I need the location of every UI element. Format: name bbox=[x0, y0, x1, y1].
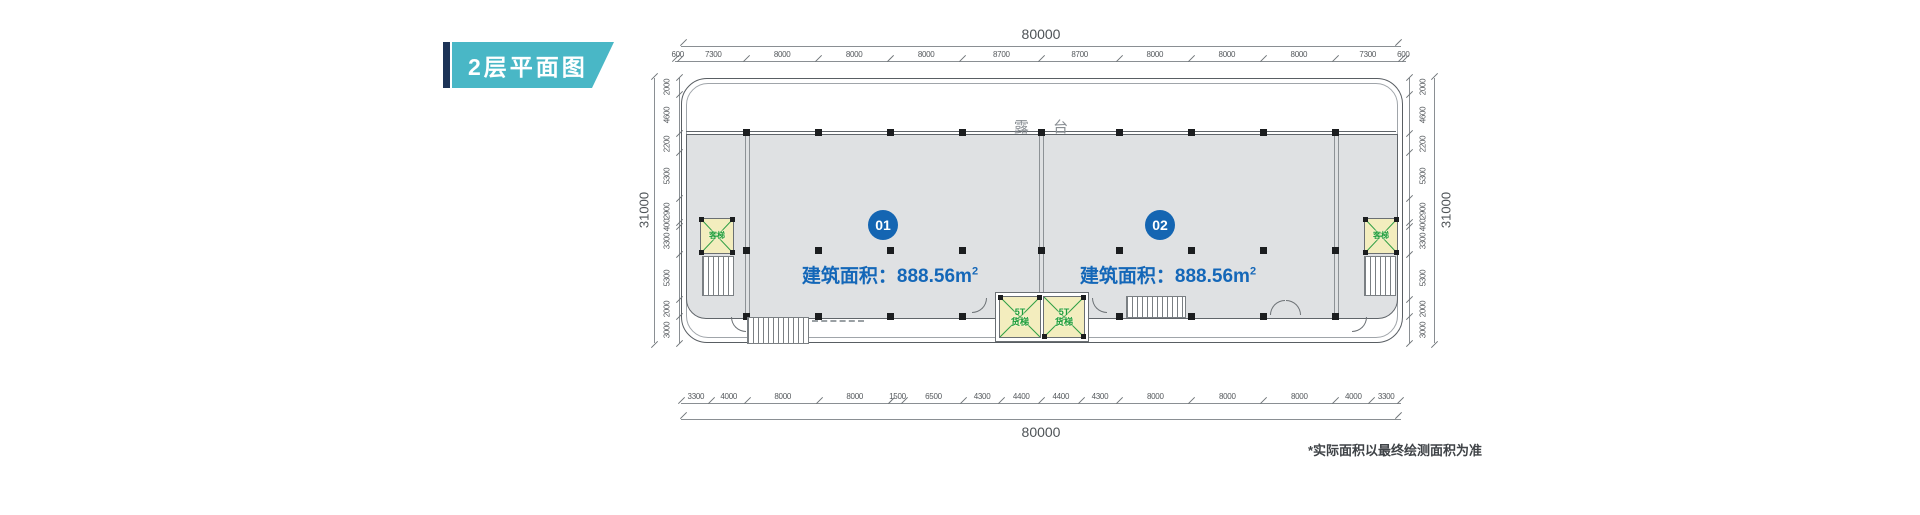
structural-column bbox=[959, 313, 966, 320]
area-label: 建筑面积： bbox=[1080, 266, 1175, 287]
passenger-elevator-label: 客梯 bbox=[1365, 219, 1397, 253]
dimension-label: 8000 bbox=[846, 392, 863, 401]
dimension-segment: 8000 bbox=[747, 392, 819, 406]
structural-column bbox=[1038, 247, 1045, 254]
structural-column bbox=[815, 247, 822, 254]
area-unit: m bbox=[955, 266, 972, 287]
dimension-segment: 8000 bbox=[1119, 392, 1191, 406]
area-value: 888.56 bbox=[1175, 266, 1233, 287]
dimension-label: 8700 bbox=[993, 50, 1010, 59]
structural-column bbox=[1260, 247, 1267, 254]
dimension-label: 3300 bbox=[1419, 233, 1428, 250]
dimension-segment: 7300 bbox=[680, 50, 746, 64]
structural-column bbox=[887, 247, 894, 254]
dimension-segment: 5300 bbox=[1402, 255, 1416, 300]
dim-row-bottom: 3300400080008000150065004300440044004300… bbox=[681, 392, 1401, 406]
structural-column bbox=[815, 313, 822, 320]
dimension-segment: 3300 bbox=[1402, 227, 1416, 255]
dimension-label: 4000 bbox=[720, 392, 737, 401]
partition-wall-right bbox=[1334, 134, 1339, 317]
dimension-label: 8000 bbox=[1219, 392, 1236, 401]
dimension-label: 4600 bbox=[663, 106, 672, 123]
dimension-segment: 8700 bbox=[1041, 50, 1119, 64]
dim-total-left-label: 31000 bbox=[637, 192, 652, 228]
dimension-label: 8700 bbox=[1071, 50, 1088, 59]
dimension-segment: 2900 bbox=[672, 199, 686, 224]
passenger-elevator-right: 客梯 bbox=[1364, 218, 1398, 254]
dim-row-top: 6007300800080008000870087008000800080007… bbox=[675, 50, 1406, 64]
dimension-segment: 6500 bbox=[904, 392, 963, 406]
dimension-label: 2000 bbox=[1419, 78, 1428, 95]
partition-wall-left bbox=[745, 134, 750, 317]
dimension-label: 8000 bbox=[1147, 392, 1164, 401]
dim-column-right: 200046002200530029004003300530020003000 bbox=[1402, 78, 1416, 343]
dimension-segment: 4400 bbox=[1001, 392, 1041, 406]
unit-01-area: 建筑面积：888.56m2 bbox=[778, 261, 1002, 288]
dimension-label: 8000 bbox=[774, 50, 791, 59]
dimension-label: 7300 bbox=[705, 50, 722, 59]
structural-column bbox=[1332, 313, 1339, 320]
dimension-label: 4300 bbox=[974, 392, 991, 401]
dimension-label: 5300 bbox=[663, 269, 672, 286]
dimension-label: 2000 bbox=[663, 301, 672, 318]
dimension-label: 8000 bbox=[1291, 50, 1308, 59]
dim-total-bottom-label: 80000 bbox=[1022, 424, 1061, 440]
structural-column bbox=[1332, 247, 1339, 254]
dimension-segment: 8000 bbox=[1119, 50, 1191, 64]
stair-center-right bbox=[1126, 296, 1186, 318]
passenger-elevator-label: 客梯 bbox=[701, 219, 733, 253]
structural-column bbox=[1188, 129, 1195, 136]
dimension-label: 8000 bbox=[846, 50, 863, 59]
dimension-label: 2900 bbox=[663, 203, 672, 220]
dimension-segment: 8000 bbox=[1191, 392, 1263, 406]
dimension-label: 8000 bbox=[918, 50, 935, 59]
dimension-label: 3000 bbox=[663, 322, 672, 339]
dimension-segment: 5300 bbox=[672, 153, 686, 198]
structural-column bbox=[815, 129, 822, 136]
unit-02-badge: 02 bbox=[1145, 210, 1175, 240]
dimension-segment: 3000 bbox=[1402, 317, 1416, 343]
dimension-segment: 3300 bbox=[672, 227, 686, 255]
dim-column-left: 200046002200530029004003300530020003000 bbox=[672, 78, 686, 343]
dimension-segment: 4300 bbox=[1081, 392, 1120, 406]
canopy-dashed-line bbox=[812, 320, 864, 322]
dimension-label: 6500 bbox=[925, 392, 942, 401]
dimension-segment: 2900 bbox=[1402, 199, 1416, 224]
dimension-segment: 8000 bbox=[818, 50, 890, 64]
dimension-label: 8000 bbox=[1291, 392, 1308, 401]
freight-elevator-label: 5T 货梯 bbox=[1000, 297, 1040, 337]
dim-total-right-label: 31000 bbox=[1439, 192, 1454, 228]
stair-right bbox=[1364, 256, 1396, 296]
structural-column bbox=[959, 247, 966, 254]
structural-column bbox=[1260, 129, 1267, 136]
freight-name: 货梯 bbox=[1055, 317, 1073, 327]
dimension-label: 5300 bbox=[1419, 269, 1428, 286]
unit-02-area: 建筑面积：888.56m2 bbox=[1056, 261, 1280, 288]
dimension-segment: 4600 bbox=[672, 95, 686, 134]
dimension-label: 4000 bbox=[1345, 392, 1362, 401]
dimension-segment: 4400 bbox=[1041, 392, 1081, 406]
structural-column bbox=[1332, 129, 1339, 136]
dimension-label: 7300 bbox=[1359, 50, 1376, 59]
structural-column bbox=[1116, 313, 1123, 320]
dim-total-bottom: 80000 bbox=[681, 419, 1401, 420]
dimension-label: 3300 bbox=[688, 392, 705, 401]
dimension-segment: 3300 bbox=[681, 392, 711, 406]
area-value: 888.56 bbox=[897, 266, 955, 287]
structural-column bbox=[1038, 129, 1045, 136]
dimension-label: 4600 bbox=[1419, 106, 1428, 123]
partition-wall-center bbox=[1039, 134, 1044, 317]
dimension-label: 2900 bbox=[1419, 203, 1428, 220]
dimension-label: 2000 bbox=[663, 78, 672, 95]
structural-column bbox=[959, 129, 966, 136]
dimension-label: 4400 bbox=[1013, 392, 1030, 401]
banner-flag: 2层平面图 bbox=[452, 42, 614, 88]
dim-total-left: 31000 bbox=[654, 78, 655, 343]
dimension-label: 8000 bbox=[774, 392, 791, 401]
dimension-segment: 8700 bbox=[962, 50, 1040, 64]
floorplan-page: 2层平面图 露 台 客梯 客梯 5T 货梯 5T 货梯 bbox=[0, 0, 1920, 515]
freight-name: 货梯 bbox=[1011, 317, 1029, 327]
freight-capacity: 5T bbox=[1015, 307, 1026, 317]
unit-01-badge: 01 bbox=[868, 210, 898, 240]
dimension-label: 3300 bbox=[663, 233, 672, 250]
dimension-segment: 4300 bbox=[963, 392, 1002, 406]
freight-capacity: 5T bbox=[1059, 307, 1070, 317]
dimension-segment: 8000 bbox=[890, 50, 962, 64]
dimension-segment: 1500 bbox=[891, 392, 905, 406]
structural-column bbox=[1260, 313, 1267, 320]
structural-column bbox=[1116, 129, 1123, 136]
dimension-label: 400 bbox=[663, 219, 672, 231]
structural-column bbox=[743, 247, 750, 254]
dim-total-right: 31000 bbox=[1434, 78, 1435, 343]
dimension-label: 8000 bbox=[1147, 50, 1164, 59]
area-unit: m bbox=[1233, 266, 1250, 287]
dimension-label: 3000 bbox=[1419, 322, 1428, 339]
dimension-label: 2200 bbox=[1419, 136, 1428, 153]
dimension-label: 5300 bbox=[663, 168, 672, 185]
dimension-segment: 8000 bbox=[819, 392, 891, 406]
structural-column bbox=[743, 129, 750, 136]
dim-total-top-label: 80000 bbox=[1022, 26, 1061, 42]
dimension-label: 5300 bbox=[1419, 168, 1428, 185]
passenger-elevator-left: 客梯 bbox=[700, 218, 734, 254]
area-unit-sup: 2 bbox=[972, 266, 978, 278]
dimension-label: 4300 bbox=[1092, 392, 1109, 401]
area-label: 建筑面积： bbox=[802, 266, 897, 287]
dimension-label: 8000 bbox=[1219, 50, 1236, 59]
structural-column bbox=[1116, 247, 1123, 254]
banner-accent-bar bbox=[443, 42, 450, 88]
dimension-segment: 4600 bbox=[1402, 95, 1416, 134]
page-title: 2层平面图 bbox=[452, 48, 588, 82]
structural-column bbox=[887, 313, 894, 320]
area-disclaimer-note: *实际面积以最终绘测面积为准 bbox=[1268, 440, 1482, 459]
dimension-segment: 8000 bbox=[746, 50, 818, 64]
dimension-segment: 4000 bbox=[711, 392, 747, 406]
dimension-segment: 8000 bbox=[1263, 50, 1335, 64]
structural-column bbox=[1188, 313, 1195, 320]
terrace-label: 露 台 bbox=[986, 116, 1106, 137]
dimension-segment: 8000 bbox=[1263, 392, 1335, 406]
freight-elevator-2: 5T 货梯 bbox=[1043, 296, 1085, 338]
dimension-label: 4400 bbox=[1052, 392, 1069, 401]
dimension-segment: 8000 bbox=[1191, 50, 1263, 64]
area-unit-sup: 2 bbox=[1250, 266, 1256, 278]
structural-column bbox=[887, 129, 894, 136]
dimension-segment: 5300 bbox=[1402, 153, 1416, 198]
stair-left bbox=[702, 256, 734, 296]
stair-entry-left bbox=[747, 317, 809, 344]
freight-elevator-label: 5T 货梯 bbox=[1044, 297, 1084, 337]
freight-elevator-1: 5T 货梯 bbox=[999, 296, 1041, 338]
dimension-segment: 7300 bbox=[1335, 50, 1401, 64]
dimension-segment: 5300 bbox=[672, 255, 686, 300]
structural-column bbox=[1188, 247, 1195, 254]
dim-total-top: 80000 bbox=[681, 46, 1401, 47]
dimension-segment: 4000 bbox=[1335, 392, 1371, 406]
dimension-label: 2000 bbox=[1419, 301, 1428, 318]
dimension-segment: 3000 bbox=[672, 317, 686, 343]
dimension-label: 400 bbox=[1419, 219, 1428, 231]
dimension-label: 2200 bbox=[663, 136, 672, 153]
dimension-label: 3300 bbox=[1378, 392, 1395, 401]
